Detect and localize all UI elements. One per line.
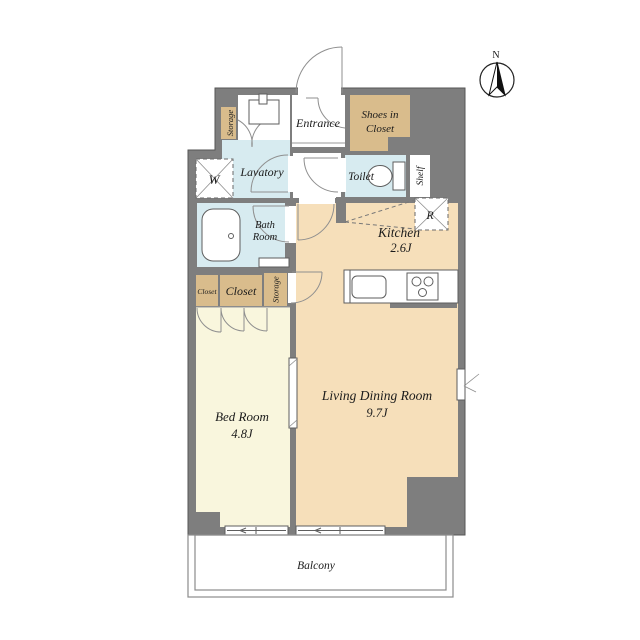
north-arrow-icon (480, 62, 514, 97)
kitchen-size-label: 2.6J (390, 241, 413, 255)
storage-middle-label: Storage (271, 276, 281, 303)
north-label: N (492, 50, 499, 61)
shoes-in-closet-label-line1: Shoes in (362, 109, 399, 121)
living-dining-size-label: 9.7J (366, 406, 389, 420)
refrigerator-label: R (425, 208, 434, 222)
bath-door-opening (285, 206, 296, 243)
entrance-label: Entrance (295, 116, 341, 130)
floor-plan-drawing: N Entrance Shoes in Closet Storage Lavat… (0, 0, 640, 640)
kitchen-wall-stub (336, 197, 346, 223)
living-window (296, 526, 385, 535)
washing-machine-label: W (209, 172, 221, 187)
shoes-in-closet-label-line2: Closet (366, 123, 395, 135)
lavatory-label: Lavatory (239, 165, 284, 179)
bathroom-label-line1: Bath (255, 220, 275, 231)
toilet-label: Toilet (348, 171, 375, 183)
kitchen-label: Kitchen (377, 225, 420, 240)
shelf-label: Shelf (415, 165, 426, 185)
wall-vent-fixture (457, 369, 479, 400)
kitchen-counter (344, 270, 458, 303)
bathroom-label-line2: Room (252, 232, 278, 243)
counter-base-strip (390, 303, 457, 308)
bedroom-window (225, 526, 288, 535)
floor-plan-page: N Entrance Shoes in Closet Storage Lavat… (0, 0, 640, 640)
balcony-label: Balcony (297, 560, 336, 572)
toilet-door-opening (340, 158, 346, 192)
closet-large-label: Closet (226, 284, 257, 298)
front-door-opening (298, 87, 341, 96)
front-door-swing (296, 47, 342, 93)
storage-middle-door-opening (288, 273, 296, 303)
bedroom-label: Bed Room (215, 409, 269, 424)
bedroom-sliding-door (289, 358, 297, 428)
living-dining-label: Living Dining Room (321, 388, 432, 403)
lavatory-door-opening (288, 156, 296, 192)
closet-small-label: Closet (197, 287, 217, 296)
storage-upper-label: Storage (225, 110, 235, 137)
bedroom-size-label: 4.8J (231, 427, 254, 441)
hallway-floor (293, 153, 341, 198)
ldk-door-opening (299, 197, 335, 204)
